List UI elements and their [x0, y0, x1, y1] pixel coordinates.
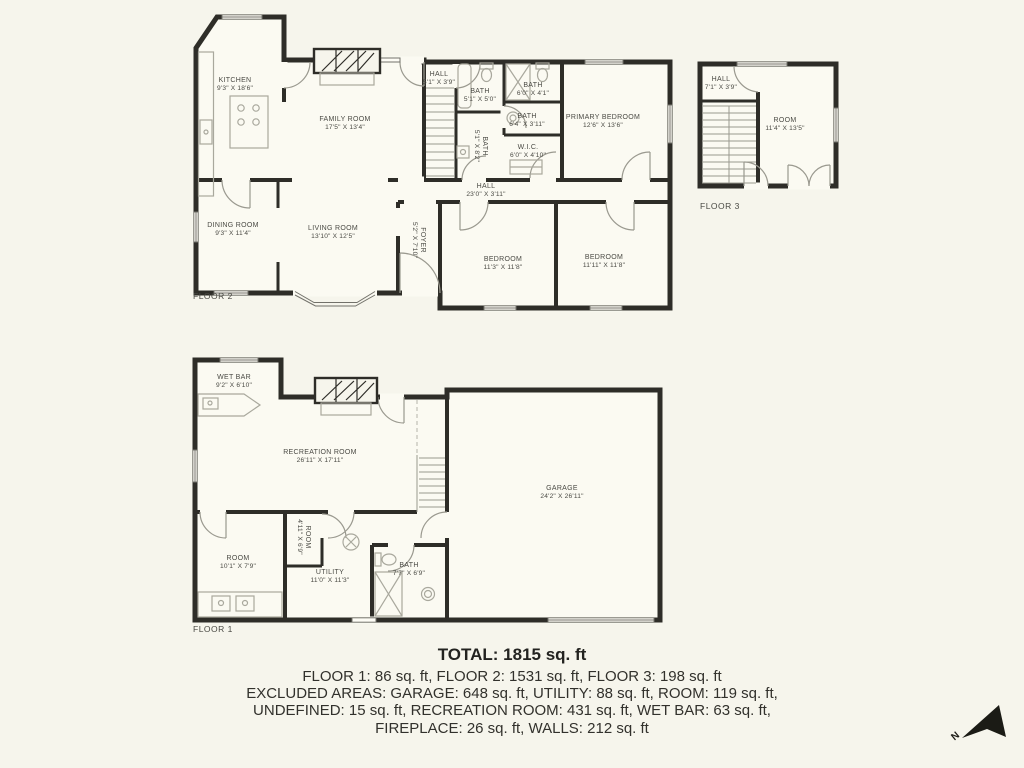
room-label-bath-b: BATH 6'0" X 4'1" [517, 81, 549, 99]
floorplan-page: KITCHEN 9'3" X 18'6" FAMILY ROOM 17'5" X… [0, 0, 1024, 768]
summary-line-floors: FLOOR 1: 86 sq. ft, FLOOR 2: 1531 sq. ft… [0, 668, 1024, 685]
room-label-bedroom-b: BEDROOM 11'11" X 11'8" [583, 253, 625, 271]
room-dims: 5'1" X 5'0" [464, 96, 496, 105]
room-name: BATH [517, 81, 549, 90]
room-dims: 9'3" X 18'6" [217, 85, 253, 94]
room-dims: 24'2" X 26'11" [540, 493, 583, 502]
room-dims: 13'10" X 12'5" [308, 233, 358, 242]
room-label-wet-bar: WET BAR 9'2" X 6'10" [216, 373, 252, 391]
room-label-bath-floor1: BATH 7'7" X 6'9" [393, 561, 425, 579]
room-dims: 7'7" X 6'9" [393, 570, 425, 579]
room-name: BATH [393, 561, 425, 570]
room-label-primary-bedroom: PRIMARY BEDROOM 12'6" X 13'6" [566, 113, 640, 131]
room-dims: 9'3" X 11'4" [207, 230, 259, 239]
room-label-living-room: LIVING ROOM 13'10" X 12'5" [308, 224, 358, 242]
room-name: BATH [480, 130, 489, 162]
room-label-dining-room: DINING ROOM 9'3" X 11'4" [207, 221, 259, 239]
room-label-family-room: FAMILY ROOM 17'5" X 13'4" [319, 115, 370, 133]
floor1-label: FLOOR 1 [193, 624, 233, 634]
room-name: BATH [464, 87, 496, 96]
summary-line-excluded-1: EXCLUDED AREAS: GARAGE: 648 sq. ft, UTIL… [0, 685, 1024, 702]
room-name: BEDROOM [484, 255, 523, 264]
room-name: DINING ROOM [207, 221, 259, 230]
room-label-bath-c: BATH 6'4" X 3'11" [509, 112, 545, 130]
room-label-room-small: ROOM 4'11" X 6'9" [294, 519, 312, 555]
summary-line-excluded-2: UNDEFINED: 15 sq. ft, RECREATION ROOM: 4… [0, 702, 1024, 719]
room-name: WET BAR [216, 373, 252, 382]
room-name: FAMILY ROOM [319, 115, 370, 124]
room-label-hall-floor3: HALL 7'1" X 3'9" [705, 75, 737, 93]
room-name: ROOM [220, 554, 256, 563]
room-name: HALL [466, 182, 505, 191]
room-dims: 12'6" X 13'6" [566, 122, 640, 131]
room-name: FOYER [418, 222, 427, 258]
room-dims: 11'0" X 11'3" [311, 577, 350, 586]
room-name: GARAGE [540, 484, 583, 493]
room-dims: 6'0" X 4'10" [510, 152, 546, 161]
room-name: UTILITY [311, 568, 350, 577]
room-name: BATH [509, 112, 545, 121]
room-name: ROOM [765, 116, 804, 125]
room-label-room-floor3: ROOM 11'4" X 13'5" [765, 116, 804, 134]
room-name: ROOM [303, 519, 312, 555]
room-name: PRIMARY BEDROOM [566, 113, 640, 122]
room-label-recreation-room: RECREATION ROOM 26'11" X 17'11" [283, 448, 357, 466]
room-dims: 11'4" X 13'5" [765, 125, 804, 134]
room-dims: 6'0" X 4'1" [517, 90, 549, 99]
area-summary: TOTAL: 1815 sq. ft FLOOR 1: 86 sq. ft, F… [0, 645, 1024, 737]
room-name: RECREATION ROOM [283, 448, 357, 457]
room-name: LIVING ROOM [308, 224, 358, 233]
room-name: KITCHEN [217, 76, 253, 85]
floor2-label: FLOOR 2 [193, 291, 233, 301]
room-dims: 17'5" X 13'4" [319, 124, 370, 133]
room-label-foyer: FOYER 5'2" X 7'10" [409, 222, 427, 258]
room-label-room-floor1: ROOM 10'1" X 7'9" [220, 554, 256, 572]
room-dims: 6'4" X 3'11" [509, 121, 545, 130]
room-dims: 26'11" X 17'11" [283, 457, 357, 466]
room-name: HALL [705, 75, 737, 84]
floor3-label: FLOOR 3 [700, 201, 740, 211]
summary-total: TOTAL: 1815 sq. ft [0, 645, 1024, 665]
room-dims: 23'0" X 3'11" [466, 191, 505, 200]
room-label-hall-upper: HALL 5'1" X 3'9" [423, 70, 455, 88]
room-dims: 7'1" X 3'9" [705, 84, 737, 93]
room-dims: 9'2" X 6'10" [216, 382, 252, 391]
room-dims: 5'1" X 8'2" [471, 130, 480, 162]
floor1-walls [195, 360, 660, 620]
room-label-bedroom-a: BEDROOM 11'3" X 11'8" [484, 255, 523, 273]
room-dims: 5'1" X 3'9" [423, 79, 455, 88]
room-label-utility: UTILITY 11'0" X 11'3" [311, 568, 350, 586]
room-label-kitchen: KITCHEN 9'3" X 18'6" [217, 76, 253, 94]
room-dims: 11'11" X 11'8" [583, 262, 625, 271]
summary-line-excluded-3: FIREPLACE: 26 sq. ft, WALLS: 212 sq. ft [0, 720, 1024, 737]
room-dims: 4'11" X 6'9" [294, 519, 303, 555]
room-label-hall-main: HALL 23'0" X 3'11" [466, 182, 505, 200]
room-dims: 5'2" X 7'10" [409, 222, 418, 258]
room-dims: 10'1" X 7'9" [220, 563, 256, 572]
room-label-bath-d: BATH 5'1" X 8'2" [471, 130, 489, 162]
room-name: W.I.C. [510, 143, 546, 152]
room-name: BEDROOM [583, 253, 625, 262]
room-name: HALL [423, 70, 455, 79]
room-label-wic: W.I.C. 6'0" X 4'10" [510, 143, 546, 161]
room-label-garage: GARAGE 24'2" X 26'11" [540, 484, 583, 502]
room-label-bath-a: BATH 5'1" X 5'0" [464, 87, 496, 105]
room-dims: 11'3" X 11'8" [484, 264, 523, 273]
